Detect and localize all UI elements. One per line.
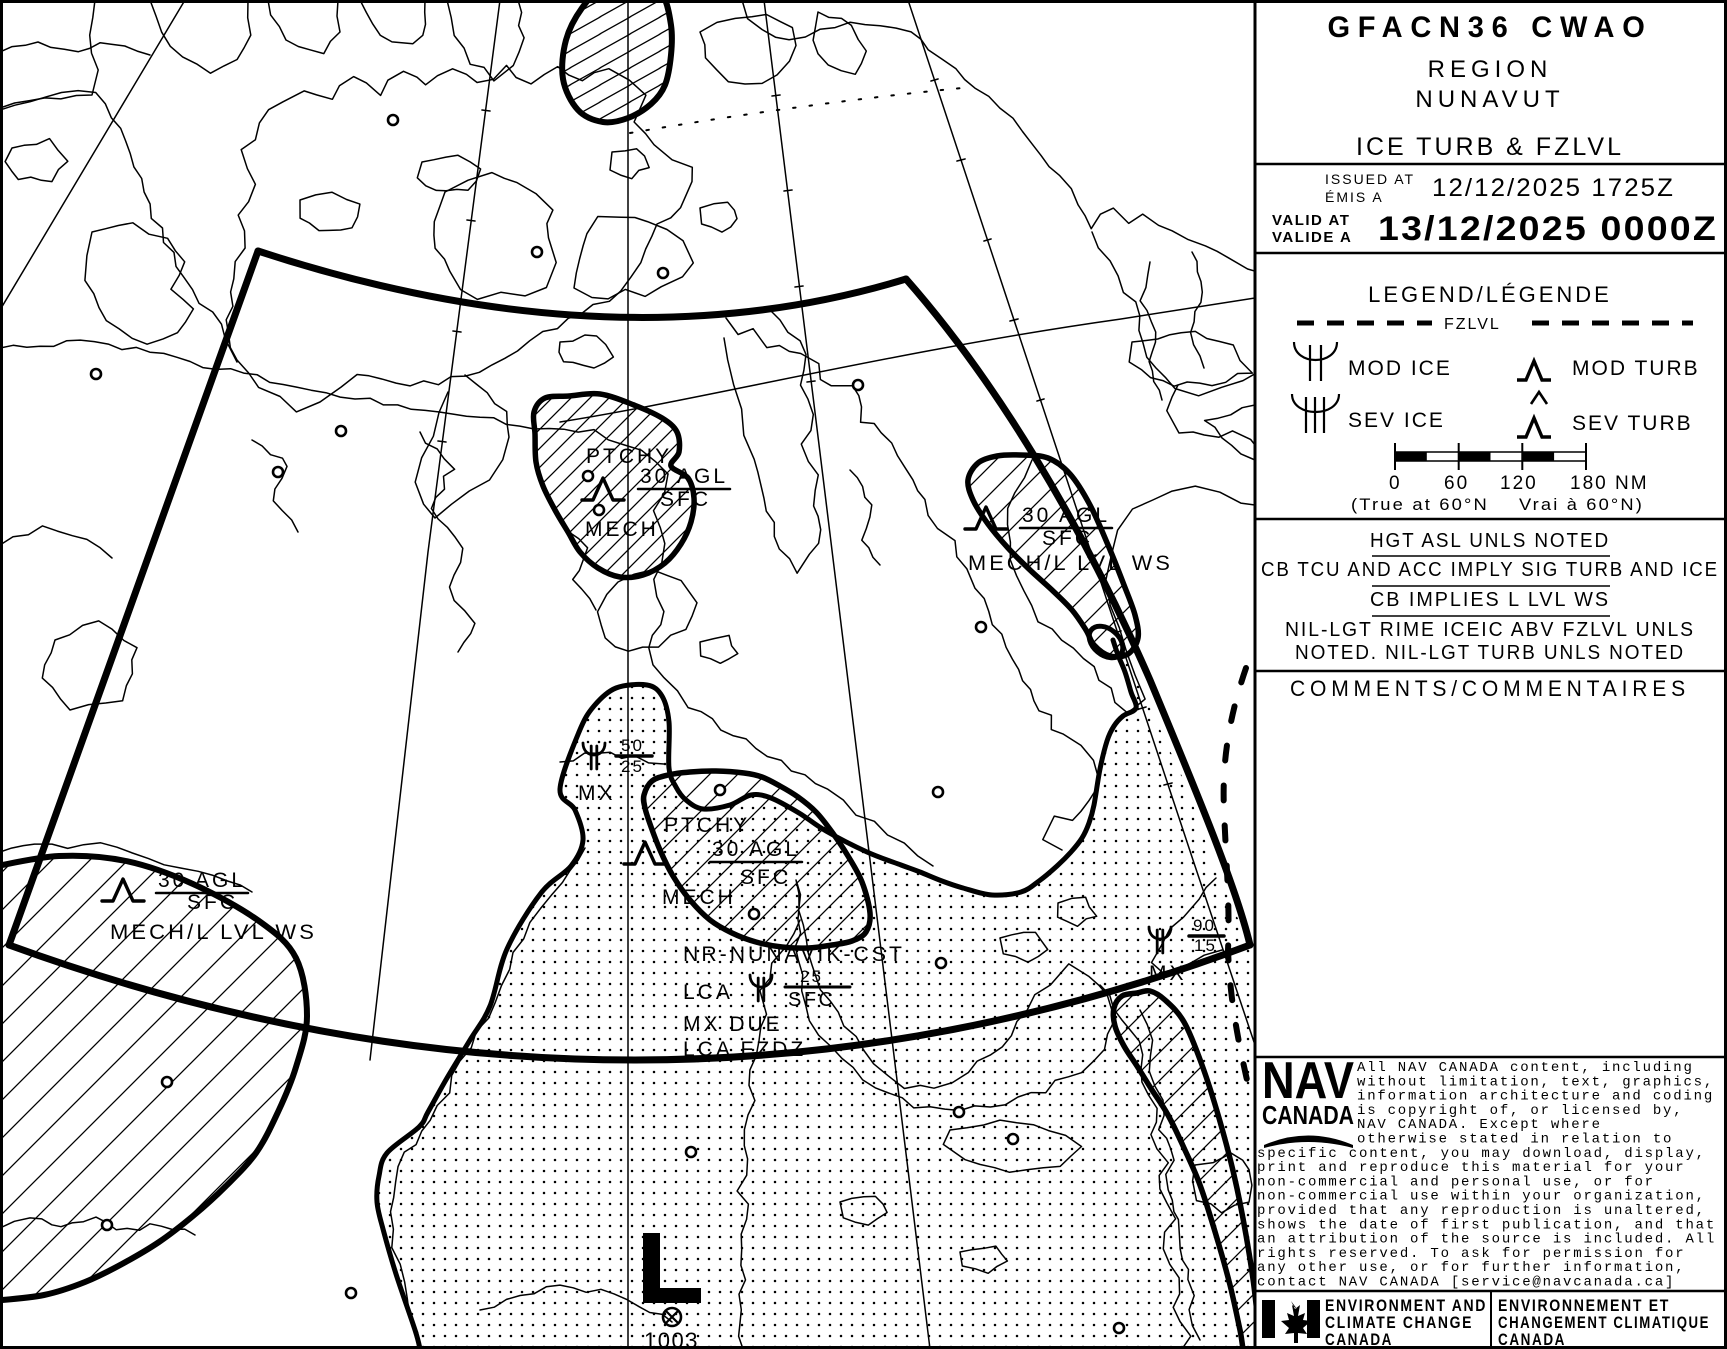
svg-text:VALID AT: VALID AT — [1272, 212, 1350, 229]
svg-text:LEGEND/LÉGENDE: LEGEND/LÉGENDE — [1368, 282, 1612, 307]
svg-text:15: 15 — [1194, 936, 1217, 955]
svg-text:1003: 1003 — [644, 1328, 699, 1349]
svg-text:GFACN36 CWAO: GFACN36 CWAO — [1328, 11, 1653, 44]
svg-text:PTCHY: PTCHY — [664, 814, 750, 837]
svg-text:FZLVL: FZLVL — [1444, 316, 1501, 333]
svg-text:NIL-LGT RIME ICEIC ABV FZLVL U: NIL-LGT RIME ICEIC ABV FZLVL UNLS — [1285, 619, 1695, 641]
svg-text:ICE TURB & FZLVL: ICE TURB & FZLVL — [1356, 133, 1624, 161]
svg-text:LCA: LCA — [683, 981, 733, 1004]
svg-text:25: 25 — [800, 967, 823, 986]
svg-text:MOD TURB: MOD TURB — [1572, 357, 1700, 380]
svg-text:MX DUE: MX DUE — [683, 1013, 783, 1036]
svg-text:60: 60 — [1444, 473, 1469, 494]
svg-text:SFC: SFC — [1042, 527, 1093, 550]
svg-text:CANADA: CANADA — [1262, 1100, 1354, 1130]
svg-text:HGT ASL UNLS NOTED: HGT ASL UNLS NOTED — [1370, 530, 1610, 552]
svg-text:MECH: MECH — [662, 886, 736, 909]
svg-text:COMMENTS/COMMENTAIRES: COMMENTS/COMMENTAIRES — [1290, 676, 1690, 701]
svg-text:50: 50 — [621, 736, 644, 755]
svg-text:ISSUED AT: ISSUED AT — [1325, 171, 1415, 187]
svg-text:SFC: SFC — [187, 891, 238, 914]
svg-text:MOD ICE: MOD ICE — [1348, 357, 1452, 380]
svg-text:NOTED. NIL-LGT TURB UNLS NOTED: NOTED. NIL-LGT TURB UNLS NOTED — [1295, 642, 1685, 664]
svg-text:SFC: SFC — [788, 989, 836, 1011]
svg-text:contact NAV CANADA [service@na: contact NAV CANADA [service@navcanada.ca… — [1257, 1275, 1675, 1291]
svg-text:REGION: REGION — [1428, 56, 1553, 83]
svg-text:(True at 60°N: (True at 60°N — [1351, 495, 1489, 514]
svg-text:SFC: SFC — [740, 866, 791, 889]
svg-text:NUNAVUT: NUNAVUT — [1415, 86, 1564, 113]
svg-text:MECH/L LVL WS: MECH/L LVL WS — [968, 552, 1173, 575]
svg-text:MECH: MECH — [585, 518, 659, 541]
svg-text:12/12/2025 1725Z: 12/12/2025 1725Z — [1432, 174, 1675, 202]
svg-text:Vrai à 60°N): Vrai à 60°N) — [1519, 495, 1644, 514]
svg-text:CB TCU AND ACC IMPLY SIG TURB: CB TCU AND ACC IMPLY SIG TURB AND ICE — [1261, 559, 1719, 581]
svg-text:120: 120 — [1500, 473, 1538, 494]
svg-text:25: 25 — [621, 757, 644, 776]
svg-text:SFC: SFC — [660, 488, 711, 511]
svg-text:30 AGL: 30 AGL — [158, 869, 246, 892]
svg-text:ÉMIS A: ÉMIS A — [1325, 189, 1384, 205]
svg-text:13/12/2025 0000Z: 13/12/2025 0000Z — [1378, 210, 1718, 248]
svg-text:CB IMPLIES L LVL WS: CB IMPLIES L LVL WS — [1370, 589, 1610, 611]
svg-text:LCA FZDZ: LCA FZDZ — [683, 1038, 806, 1061]
svg-text:30 AGL: 30 AGL — [712, 838, 800, 861]
svg-text:30 AGL: 30 AGL — [1022, 504, 1110, 527]
svg-text:VALIDE A: VALIDE A — [1272, 229, 1352, 246]
svg-text:90: 90 — [1193, 916, 1216, 935]
svg-text:SEV ICE: SEV ICE — [1348, 409, 1445, 432]
svg-text:MECH/L LVL WS: MECH/L LVL WS — [110, 921, 317, 944]
svg-text:SEV TURB: SEV TURB — [1572, 412, 1693, 435]
svg-text:NR-NUNAVIK-CST: NR-NUNAVIK-CST — [683, 943, 905, 966]
svg-text:30 AGL: 30 AGL — [640, 465, 728, 488]
svg-text:180 NM: 180 NM — [1570, 473, 1649, 494]
svg-text:MX: MX — [1149, 962, 1187, 985]
svg-text:0: 0 — [1389, 473, 1402, 494]
svg-text:MX: MX — [578, 782, 616, 805]
